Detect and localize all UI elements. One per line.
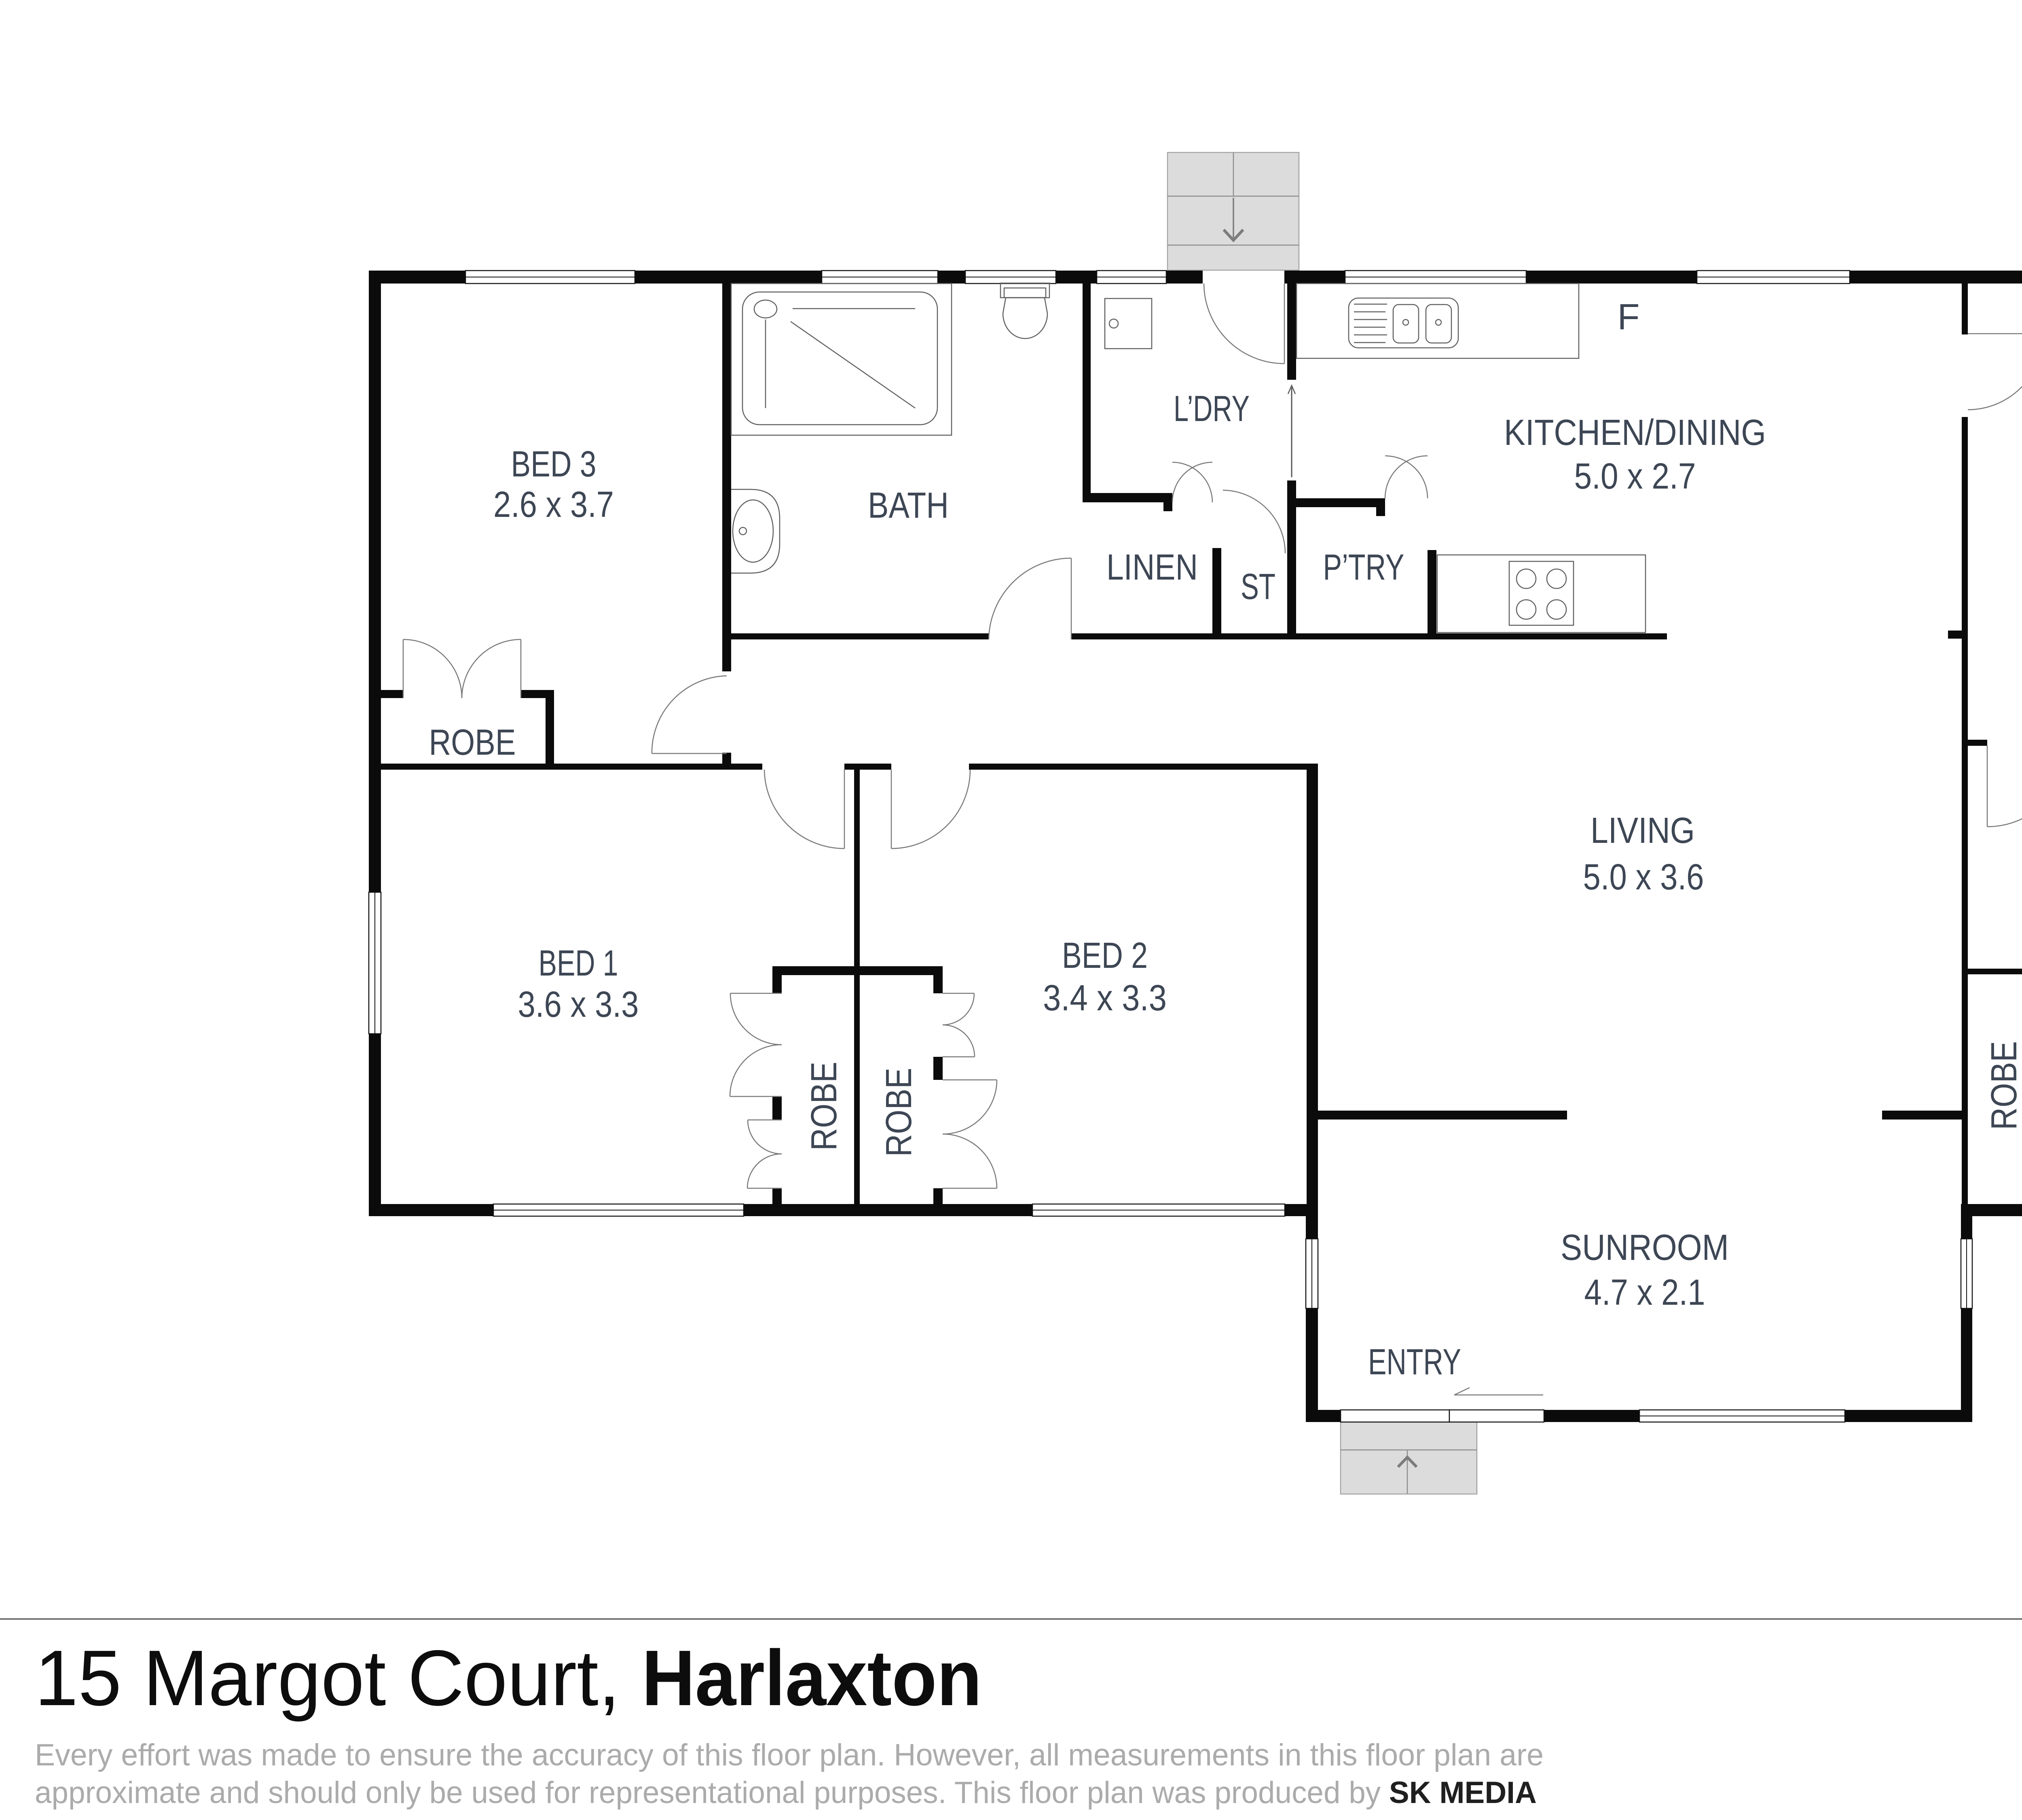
svg-text:KITCHEN/DINING: KITCHEN/DINING xyxy=(1504,413,1766,453)
svg-text:ROBE: ROBE xyxy=(804,1062,844,1151)
svg-text:3.4 x 3.3: 3.4 x 3.3 xyxy=(1043,978,1167,1018)
svg-text:ROBE: ROBE xyxy=(879,1068,919,1157)
svg-text:4.7 x 2.1: 4.7 x 2.1 xyxy=(1584,1272,1705,1313)
svg-text:5.0 x 3.6: 5.0 x 3.6 xyxy=(1583,857,1704,897)
svg-text:BED 2: BED 2 xyxy=(1062,935,1148,976)
svg-text:LIVING: LIVING xyxy=(1591,811,1695,851)
svg-text:approximate and should only be: approximate and should only be used for … xyxy=(35,1776,1537,1810)
svg-text:3.6 x 3.3: 3.6 x 3.3 xyxy=(518,984,639,1025)
svg-text:5.0 x 2.7: 5.0 x 2.7 xyxy=(1574,456,1696,497)
svg-text:BATH: BATH xyxy=(868,485,949,526)
svg-text:ENTRY: ENTRY xyxy=(1368,1342,1461,1382)
svg-text:F: F xyxy=(1618,297,1640,337)
svg-text:LINEN: LINEN xyxy=(1106,547,1198,588)
svg-text:ST: ST xyxy=(1241,567,1275,607)
svg-text:2.6 x 3.7: 2.6 x 3.7 xyxy=(493,485,614,525)
svg-text:SUNROOM: SUNROOM xyxy=(1561,1227,1729,1268)
svg-text:L’DRY: L’DRY xyxy=(1174,389,1250,429)
svg-text:ROBE: ROBE xyxy=(1984,1041,2022,1130)
svg-text:Every effort was made to ensur: Every effort was made to ensure the accu… xyxy=(35,1738,1544,1772)
svg-text:P’TRY: P’TRY xyxy=(1323,547,1404,588)
svg-text:ROBE: ROBE xyxy=(429,722,516,763)
svg-text:BED 3: BED 3 xyxy=(511,444,596,485)
svg-text:BED 1: BED 1 xyxy=(539,943,618,984)
svg-text:15 Margot Court, Harlaxton: 15 Margot Court, Harlaxton xyxy=(35,1634,982,1722)
